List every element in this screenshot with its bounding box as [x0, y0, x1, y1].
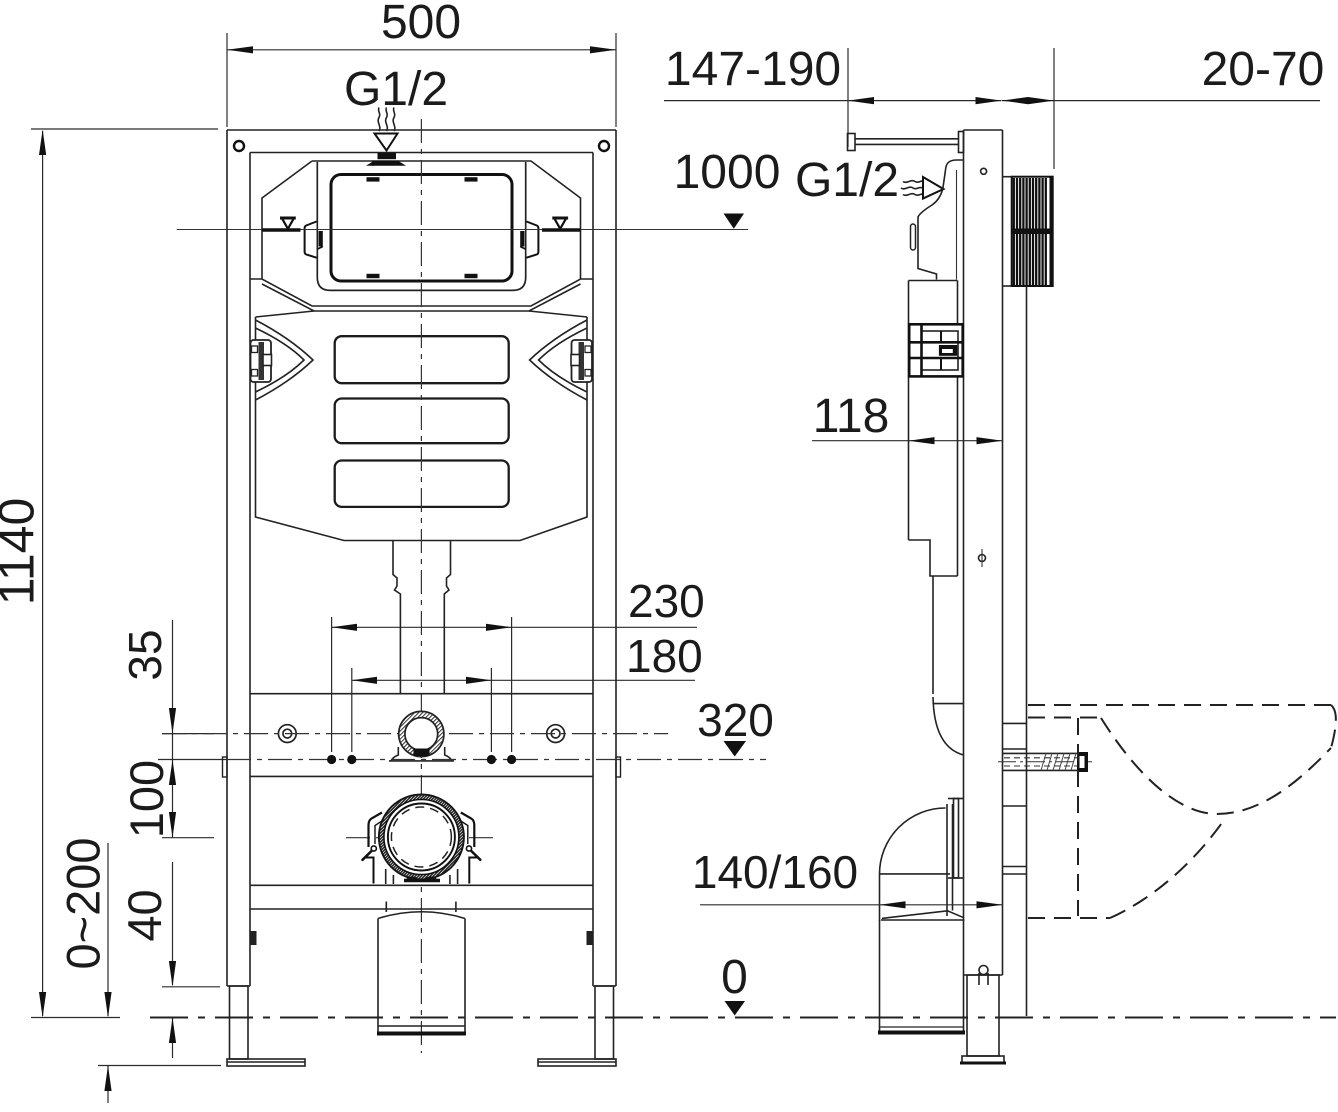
svg-text:118: 118 [813, 390, 890, 443]
svg-text:180: 180 [626, 630, 703, 682]
svg-text:320: 320 [697, 694, 774, 746]
svg-text:230: 230 [628, 575, 705, 627]
svg-text:500: 500 [381, 0, 461, 49]
svg-text:35: 35 [119, 629, 171, 680]
svg-text:100: 100 [120, 760, 173, 838]
svg-text:140/160: 140/160 [692, 846, 858, 898]
svg-text:20-70: 20-70 [1202, 43, 1325, 96]
svg-text:0~200: 0~200 [57, 837, 110, 969]
svg-text:147-190: 147-190 [665, 43, 841, 96]
svg-text:G1/2: G1/2 [795, 154, 899, 207]
svg-text:1000: 1000 [674, 146, 781, 199]
svg-text:G1/2: G1/2 [344, 63, 448, 116]
svg-text:0: 0 [721, 951, 748, 1004]
svg-text:1140: 1140 [0, 498, 45, 606]
svg-text:40: 40 [118, 889, 171, 941]
